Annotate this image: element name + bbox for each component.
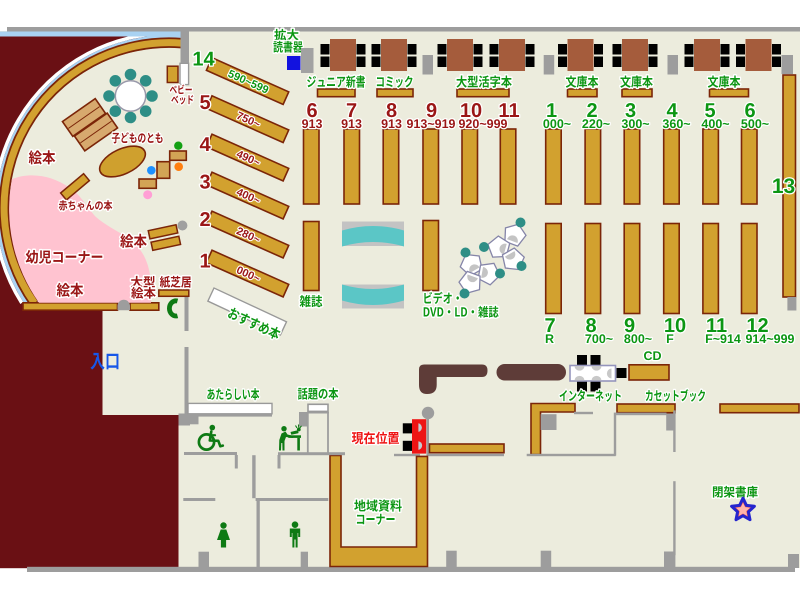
svg-text:500~: 500~ <box>741 117 769 131</box>
svg-text:14: 14 <box>192 49 215 71</box>
svg-text:913: 913 <box>381 117 402 131</box>
svg-text:300~: 300~ <box>621 117 649 131</box>
svg-text:360~: 360~ <box>662 117 690 131</box>
svg-text:700~: 700~ <box>585 332 613 346</box>
svg-text:913~919: 913~919 <box>406 117 455 131</box>
svg-text:220~: 220~ <box>582 117 610 131</box>
svg-text:920~999: 920~999 <box>458 117 507 131</box>
svg-text:CD: CD <box>643 349 661 363</box>
svg-text:913: 913 <box>302 117 323 131</box>
svg-text:400~: 400~ <box>701 117 729 131</box>
svg-text:1: 1 <box>199 251 210 273</box>
svg-text:000~: 000~ <box>543 117 571 131</box>
svg-text:5: 5 <box>199 92 210 114</box>
svg-text:2: 2 <box>199 209 210 231</box>
svg-text:913: 913 <box>341 117 362 131</box>
svg-text:914~999: 914~999 <box>745 332 794 346</box>
svg-text:F: F <box>666 332 674 346</box>
svg-text:4: 4 <box>199 134 211 156</box>
svg-text:F~914: F~914 <box>705 332 741 346</box>
svg-text:13: 13 <box>772 175 795 198</box>
svg-text:3: 3 <box>199 172 210 194</box>
svg-text:R: R <box>545 332 554 346</box>
svg-text:800~: 800~ <box>624 332 652 346</box>
